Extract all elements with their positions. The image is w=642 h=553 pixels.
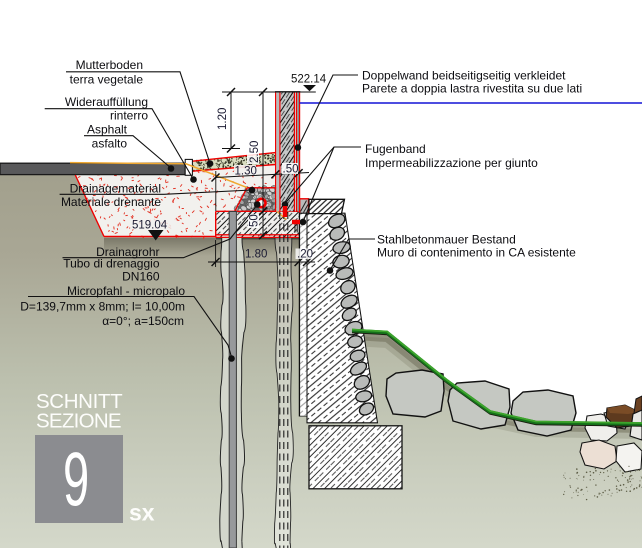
svg-text:Tubo di drenaggio: Tubo di drenaggio [63,257,160,271]
svg-text:rinterro: rinterro [110,109,148,123]
svg-text:α=0°; a=150cm: α=0°; a=150cm [102,314,184,328]
svg-text:D=139,7mm x 8mm; l= 10,00m: D=139,7mm x 8mm; l= 10,00m [20,300,185,314]
svg-text:Fugenband: Fugenband [365,142,426,156]
svg-text:Muro di contenimento in CA esi: Muro di contenimento in CA esistente [377,246,576,260]
svg-text:1.80: 1.80 [245,249,267,261]
svg-text:asfalto: asfalto [92,137,128,151]
svg-text:Impermeabilizzazione per giunt: Impermeabilizzazione per giunto [365,156,538,170]
svg-text:Micropfahl - micropalo: Micropfahl - micropalo [67,284,185,298]
svg-text:.20: .20 [297,249,313,261]
svg-text:1.20: 1.20 [217,108,229,130]
svg-text:519.04: 519.04 [132,220,168,232]
svg-text:9: 9 [63,438,89,522]
svg-text:522.14: 522.14 [291,74,327,86]
svg-text:Widerauffüllung: Widerauffüllung [65,95,148,109]
svg-text:sx: sx [129,500,155,526]
svg-text:1.30: 1.30 [235,166,257,178]
svg-text:50: 50 [249,214,261,227]
svg-text:SEZIONE: SEZIONE [36,410,122,433]
svg-text:Mutterboden: Mutterboden [76,58,143,72]
svg-text:terra vegetale: terra vegetale [70,73,144,87]
svg-text:Drainagematerial: Drainagematerial [70,182,161,196]
svg-text:Doppelwand beidseitigseitig ve: Doppelwand beidseitigseitig verkleidet [362,69,566,83]
svg-text:2.50: 2.50 [249,141,261,163]
svg-text:DN160: DN160 [122,270,160,284]
svg-text:Stahlbetonmauer Bestand: Stahlbetonmauer Bestand [377,233,516,247]
svg-text:Parete a doppia lastra rivesti: Parete a doppia lastra rivestita su due … [362,82,582,96]
svg-text:.50: .50 [283,164,299,176]
svg-text:Materiale drenante: Materiale drenante [61,195,161,209]
svg-text:Asphalt: Asphalt [87,123,128,137]
